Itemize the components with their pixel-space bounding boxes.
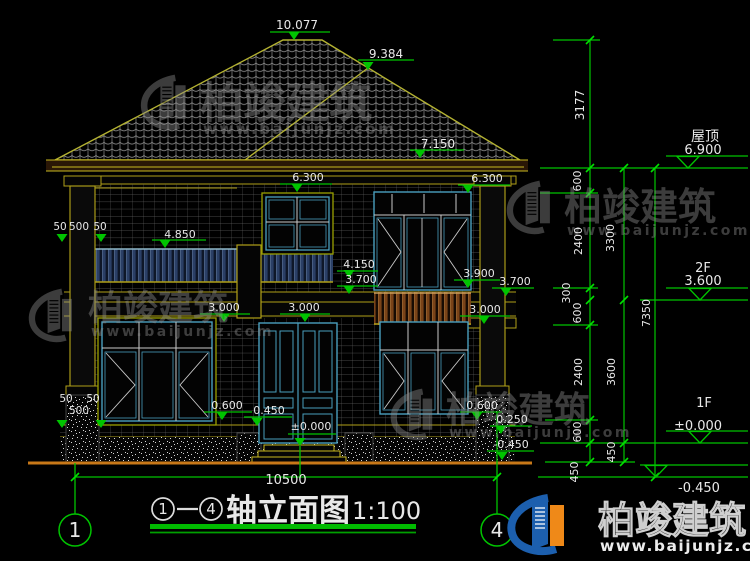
drawing-scale: 1:100	[352, 497, 421, 525]
drawing-title: 轴立面图	[226, 493, 350, 529]
elev-6300-left: 6.300	[292, 171, 324, 184]
elev-0600-right: 0.600	[466, 399, 498, 412]
entrance-steps	[252, 445, 346, 463]
watermark-url: www.baijunjz.com	[203, 120, 396, 138]
wall-top-band	[64, 176, 516, 184]
watermark-logo-icon	[510, 184, 550, 231]
company-logo-url: www.baijunjz.com	[600, 537, 750, 555]
dim-50-upper-a: 50	[53, 221, 66, 233]
company-logo: 柏竣建筑 www.baijunjz.com	[511, 498, 750, 555]
elev-7150: 7.150	[421, 137, 455, 151]
dim-10500: 10500	[265, 473, 306, 488]
level-1f-value: ±0.000	[674, 419, 722, 434]
elev-4150: 4.150	[343, 258, 375, 271]
dim-450-b: 450	[605, 442, 618, 463]
elev-0000-door: ±0.000	[291, 420, 332, 433]
dim-3177: 3177	[573, 90, 587, 121]
elev-neg0450-wall: -0.450	[493, 438, 528, 451]
dim-600-a: 600	[571, 171, 584, 192]
dim-2400-a: 2400	[572, 227, 585, 255]
dim-7350: 7350	[640, 299, 653, 327]
company-logo-icon	[511, 498, 564, 551]
elev-0600-left: 0.600	[211, 399, 243, 412]
elev-3700-mid: 3.700	[345, 273, 377, 286]
elev-3700-right: 3.700	[499, 275, 531, 288]
watermark-url: www.baijunjz.com	[449, 425, 632, 441]
dim-500-lower: 500	[69, 405, 89, 417]
window-2f-right	[374, 192, 471, 290]
elev-0450-door: 0.450	[253, 404, 285, 417]
left-column-capital	[64, 176, 101, 186]
dim-50-upper-b: 50	[93, 221, 106, 233]
title-bubble-start-number: 1	[158, 500, 168, 518]
elev-3900: 3.900	[463, 267, 495, 280]
level-1f-label: 1F	[696, 396, 712, 411]
elevation-drawing: 1 4 柏竣建筑 www.baijunjz.com 柏竣建筑 www.baiju…	[0, 0, 750, 561]
dim-450-a: 450	[568, 462, 581, 483]
mid-right-pier-foundation	[345, 433, 373, 463]
title-block: 1 4 轴立面图 1:100	[150, 493, 421, 533]
roof-fascia	[46, 160, 528, 171]
axis-number-right: 4	[491, 518, 504, 542]
dim-3600: 3600	[605, 358, 618, 386]
watermark-right: 柏竣建筑 www.baijunjz.com	[510, 184, 750, 239]
level-2f-value: 3.600	[684, 274, 721, 289]
window-2f-center	[262, 193, 333, 254]
dim-50-lower-b: 50	[86, 393, 99, 405]
dim-50-lower-a: 50	[59, 393, 72, 405]
elev-6300-right: 6.300	[471, 172, 503, 185]
elev-10077: 10.077	[276, 18, 318, 32]
elev-0250: 0.250	[496, 413, 528, 426]
dim-600-c: 600	[571, 422, 584, 443]
dim-300: 300	[560, 283, 573, 304]
level-ground-value: -0.450	[678, 481, 720, 496]
watermark-url: www.baijunjz.com	[567, 223, 750, 239]
center-pier-2f	[237, 245, 261, 318]
elev-4850: 4.850	[164, 228, 196, 241]
axis-number-left: 1	[69, 518, 82, 542]
dim-3300: 3300	[604, 224, 617, 252]
watermark-brand: 柏竣建筑	[88, 288, 228, 329]
elev-3000-left: 3.000	[208, 301, 240, 314]
title-underline-thick	[150, 524, 416, 529]
cad-elevation-screenshot: 1 4 柏竣建筑 www.baijunjz.com 柏竣建筑 www.baiju…	[0, 0, 750, 561]
level-roof-value: 6.900	[684, 143, 721, 158]
balcony-railing-right	[374, 292, 471, 325]
elev-9384: 9.384	[369, 47, 403, 61]
elev-3000-mid: 3.000	[288, 301, 320, 314]
company-logo-brand: 柏竣建筑	[598, 499, 746, 542]
elev-3000-right: 3.000	[469, 303, 501, 316]
watermark-url: www.baijunjz.com	[91, 324, 274, 340]
dim-500-upper: 500	[69, 221, 89, 233]
dim-600-b: 600	[571, 303, 584, 324]
dim-2400-b: 2400	[572, 358, 585, 386]
title-bubble-end-number: 4	[206, 500, 216, 518]
